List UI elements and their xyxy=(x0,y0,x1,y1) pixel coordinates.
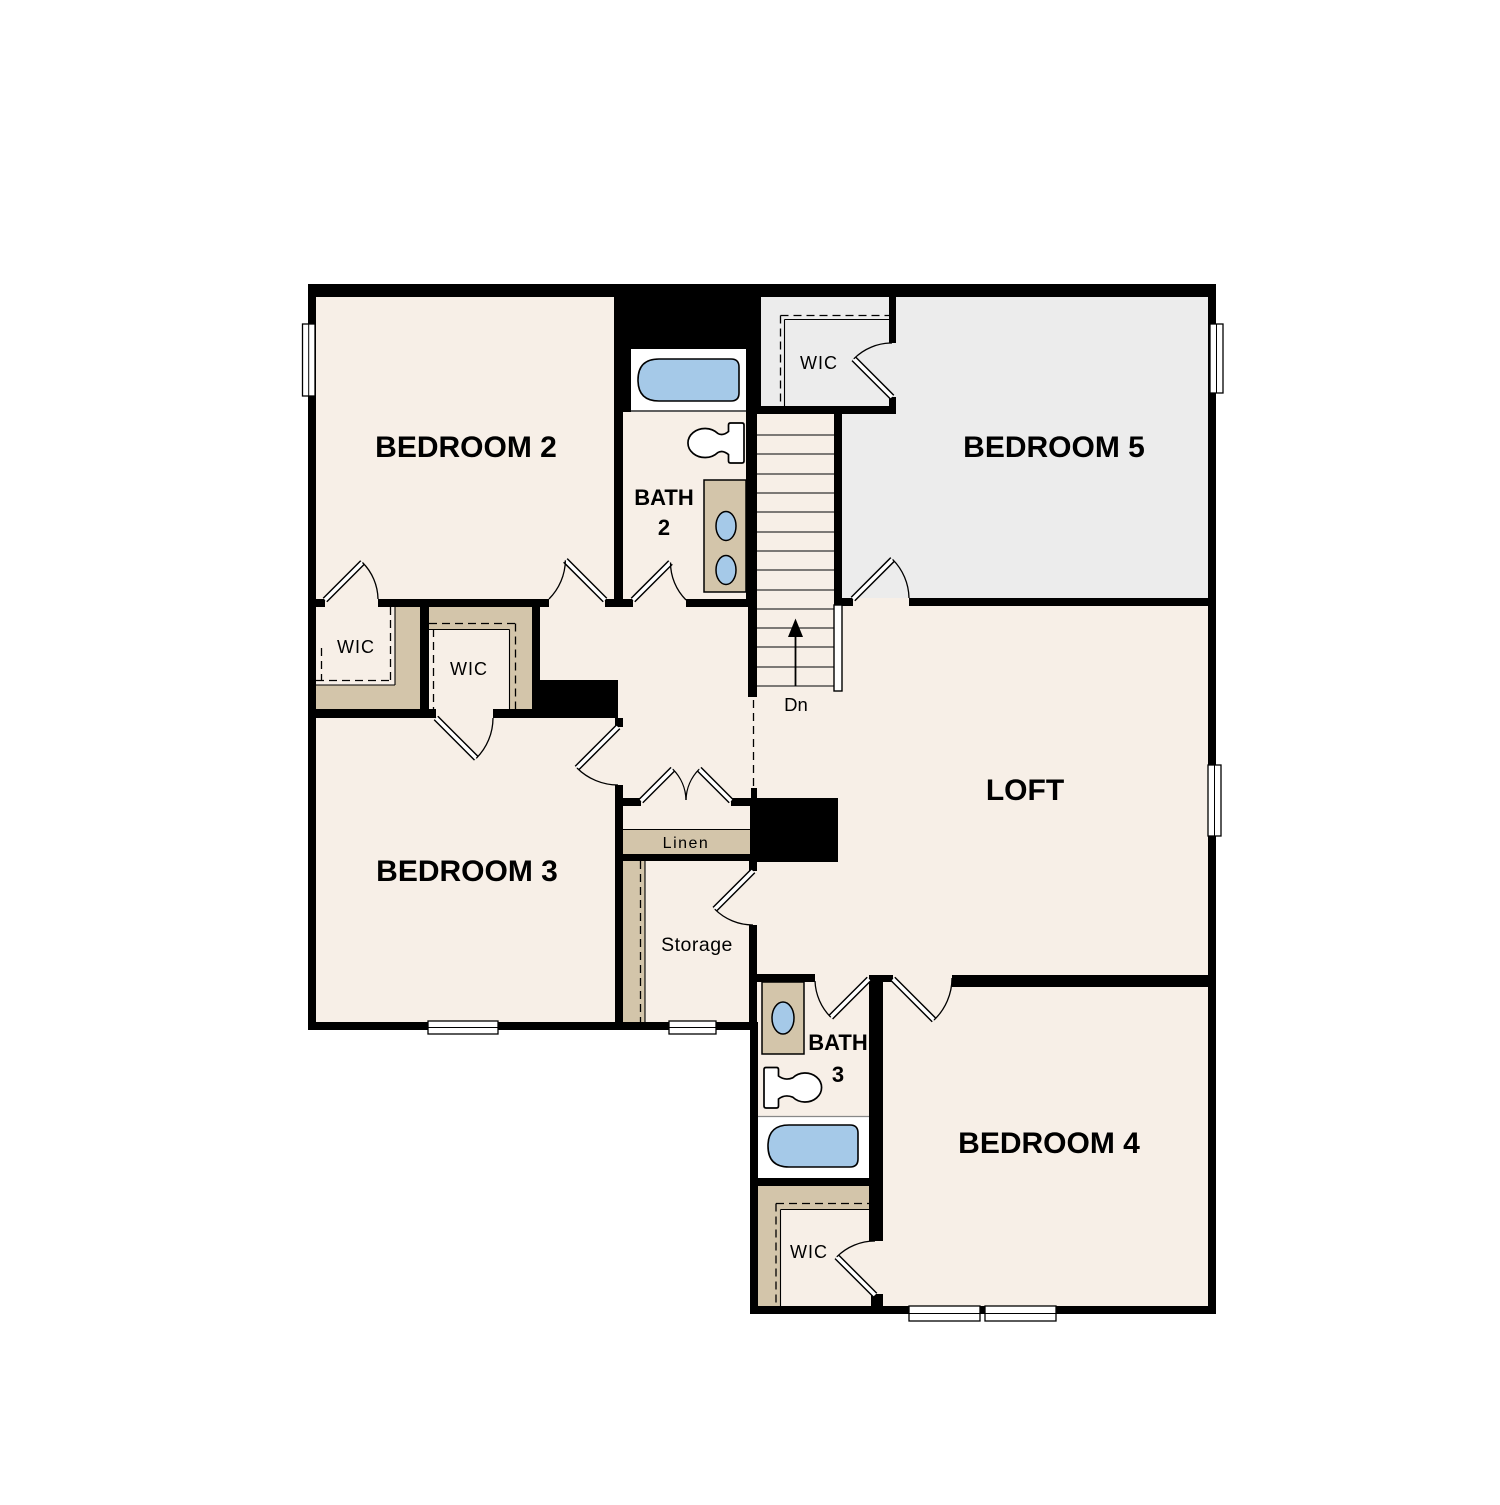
svg-text:Storage: Storage xyxy=(661,934,733,956)
svg-text:Dn: Dn xyxy=(784,694,808,715)
svg-text:BEDROOM 4: BEDROOM 4 xyxy=(958,1127,1140,1160)
svg-text:BATH: BATH xyxy=(634,485,693,510)
svg-text:Linen: Linen xyxy=(663,835,710,852)
svg-text:WIC: WIC xyxy=(800,353,838,373)
svg-text:2: 2 xyxy=(658,515,670,540)
svg-text:BEDROOM 3: BEDROOM 3 xyxy=(376,855,558,888)
svg-text:WIC: WIC xyxy=(337,637,375,657)
svg-text:WIC: WIC xyxy=(790,1242,828,1262)
svg-text:BEDROOM 2: BEDROOM 2 xyxy=(375,431,557,464)
svg-text:BATH: BATH xyxy=(808,1030,867,1055)
svg-text:BEDROOM 5: BEDROOM 5 xyxy=(963,431,1145,464)
svg-text:LOFT: LOFT xyxy=(986,774,1064,807)
svg-text:WIC: WIC xyxy=(450,659,488,679)
svg-text:3: 3 xyxy=(832,1062,844,1087)
